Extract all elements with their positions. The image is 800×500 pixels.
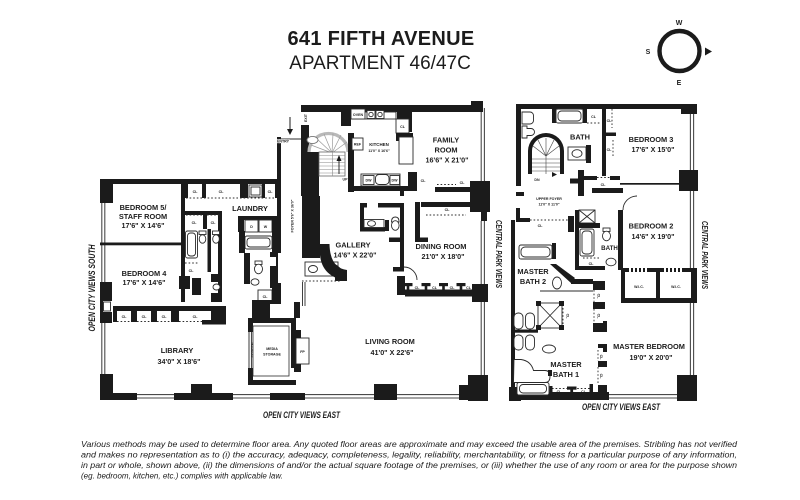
svg-text:11'0" X 11'0": 11'0" X 11'0" [538, 203, 559, 207]
svg-text:CL: CL [607, 119, 613, 123]
svg-text:CL: CL [142, 315, 148, 319]
svg-text:FP: FP [300, 350, 305, 354]
svg-text:BEDROOM 5/: BEDROOM 5/ [120, 203, 167, 212]
svg-text:OPEN CITY VIEWS EAST: OPEN CITY VIEWS EAST [582, 402, 660, 412]
svg-text:CL: CL [268, 190, 274, 194]
svg-text:OVEN: OVEN [353, 113, 364, 117]
svg-text:CL: CL [597, 294, 601, 300]
svg-text:S: S [646, 49, 651, 56]
svg-text:CL: CL [599, 355, 603, 361]
svg-text:GALLERY: GALLERY [335, 241, 370, 250]
svg-text:in part or whole, shown above,: in part or whole, shown above, (ii) the … [81, 461, 738, 470]
svg-text:BEDROOM 4: BEDROOM 4 [122, 269, 168, 278]
svg-text:BATH 2: BATH 2 [520, 277, 546, 286]
svg-text:STAFF ROOM: STAFF ROOM [119, 212, 167, 221]
svg-text:LAUNDRY: LAUNDRY [232, 204, 268, 213]
svg-text:W.I.C.: W.I.C. [671, 285, 681, 289]
svg-text:LIVING ROOM: LIVING ROOM [365, 337, 415, 346]
svg-text:CL: CL [601, 183, 607, 187]
svg-text:W: W [264, 225, 268, 229]
svg-text:CL: CL [192, 221, 198, 225]
svg-text:FAMILY: FAMILY [433, 136, 459, 145]
svg-text:Various methods may be used to: Various methods may be used to determine… [81, 440, 738, 449]
svg-text:16'6" X 21'0": 16'6" X 21'0" [425, 156, 468, 165]
svg-text:CL: CL [421, 179, 427, 183]
svg-text:(eg. bedroom, kitchen, etc.) c: (eg. bedroom, kitchen, etc.) complies wi… [81, 472, 283, 481]
svg-text:CL: CL [263, 295, 269, 299]
svg-text:CL: CL [589, 262, 595, 266]
svg-text:19'0" X 20'0": 19'0" X 20'0" [629, 353, 672, 362]
svg-text:D: D [250, 225, 253, 229]
svg-text:CL: CL [450, 286, 456, 290]
svg-text:ENTRY: ENTRY [277, 140, 290, 144]
svg-text:BATH 1: BATH 1 [553, 370, 579, 379]
svg-text:CL: CL [597, 314, 601, 320]
svg-text:OPEN CITY VIEWS SOUTH: OPEN CITY VIEWS SOUTH [87, 244, 97, 332]
svg-text:W: W [676, 20, 683, 27]
svg-text:STORAGE: STORAGE [263, 353, 281, 357]
svg-text:CENTRAL PARK VIEWS: CENTRAL PARK VIEWS [494, 220, 503, 288]
svg-text:CL: CL [162, 315, 168, 319]
svg-text:CL: CL [211, 221, 217, 225]
svg-text:CL: CL [219, 190, 225, 194]
svg-text:KITCHEN: KITCHEN [369, 142, 389, 147]
svg-text:CL: CL [400, 125, 406, 129]
svg-text:REF: REF [354, 143, 362, 147]
svg-text:ROOM: ROOM [435, 146, 458, 155]
svg-text:CL: CL [189, 269, 195, 273]
svg-text:34'0" X 18'6": 34'0" X 18'6" [157, 357, 200, 366]
svg-text:CL: CL [557, 390, 563, 394]
svg-text:11'0" X 16'6": 11'0" X 16'6" [368, 149, 390, 153]
svg-text:CL: CL [466, 286, 472, 290]
svg-text:41'0" X 22'6": 41'0" X 22'6" [370, 348, 413, 357]
svg-text:CL: CL [193, 315, 199, 319]
svg-text:OPEN CITY VIEWS EAST: OPEN CITY VIEWS EAST [263, 410, 340, 420]
svg-text:EXIT: EXIT [304, 113, 308, 122]
svg-text:BEDROOM 3: BEDROOM 3 [629, 135, 674, 144]
svg-text:UP: UP [343, 178, 349, 182]
svg-text:14'6" X 19'0": 14'6" X 19'0" [631, 232, 674, 241]
svg-text:641 FIFTH AVENUE: 641 FIFTH AVENUE [287, 28, 474, 50]
svg-text:APARTMENT 46/47C: APARTMENT 46/47C [289, 53, 471, 74]
svg-text:BEDROOM 2: BEDROOM 2 [629, 222, 674, 231]
svg-text:MASTER: MASTER [550, 360, 582, 369]
svg-text:BATH: BATH [570, 133, 590, 142]
svg-text:CL: CL [122, 315, 128, 319]
svg-text:LIBRARY: LIBRARY [161, 346, 194, 355]
svg-text:CL: CL [607, 148, 613, 152]
svg-text:E: E [677, 80, 682, 87]
svg-text:CL: CL [460, 181, 466, 185]
svg-text:CL: CL [599, 374, 603, 380]
svg-text:CL: CL [193, 190, 199, 194]
svg-text:17'6" X 14'6": 17'6" X 14'6" [122, 278, 165, 287]
svg-text:CL: CL [566, 314, 570, 320]
svg-text:CL: CL [591, 115, 597, 119]
svg-text:21'0" X 18'0": 21'0" X 18'0" [421, 252, 464, 261]
svg-text:14'6" X 22'0": 14'6" X 22'0" [333, 251, 376, 260]
svg-text:CENTRAL PARK VIEWS: CENTRAL PARK VIEWS [700, 221, 709, 289]
svg-text:BATH: BATH [601, 245, 618, 252]
svg-text:MEDIA: MEDIA [266, 347, 278, 351]
svg-text:FOYER 5'6" X 36'0": FOYER 5'6" X 36'0" [291, 199, 295, 232]
svg-text:DINING ROOM: DINING ROOM [416, 242, 467, 251]
svg-text:UPPER FOYER: UPPER FOYER [536, 197, 562, 201]
svg-text:and makes no representation as: and makes no representation as to (i) th… [81, 451, 737, 460]
svg-text:17'6" X 15'0": 17'6" X 15'0" [631, 145, 674, 154]
svg-text:CL: CL [538, 224, 544, 228]
svg-text:CL: CL [415, 286, 421, 290]
svg-text:MASTER BEDROOM: MASTER BEDROOM [613, 342, 685, 351]
svg-text:W.I.C.: W.I.C. [634, 285, 644, 289]
svg-text:CL: CL [432, 286, 438, 290]
svg-text:DW: DW [366, 179, 373, 183]
svg-text:CL: CL [581, 390, 587, 394]
svg-text:CL: CL [445, 208, 451, 212]
svg-text:DW: DW [392, 179, 399, 183]
svg-text:DN: DN [534, 178, 540, 182]
svg-text:MASTER: MASTER [517, 267, 549, 276]
svg-text:17'6" X 14'6": 17'6" X 14'6" [121, 221, 164, 230]
